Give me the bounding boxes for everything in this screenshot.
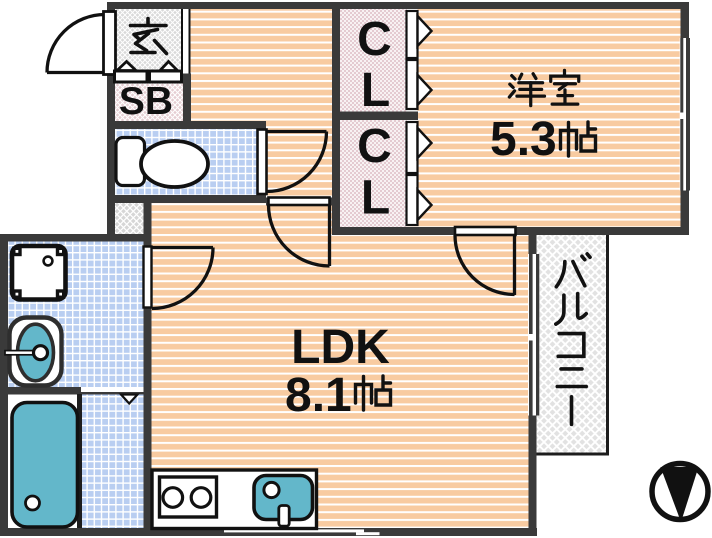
svg-text:LDK: LDK [291,321,390,374]
svg-text:5.3: 5.3 [490,113,557,166]
svg-text:C: C [357,120,392,173]
svg-text:L: L [361,172,390,225]
svg-text:SB: SB [119,80,173,123]
svg-text:C: C [357,13,392,66]
svg-text:8.1: 8.1 [285,369,352,422]
svg-text:L: L [361,64,390,117]
